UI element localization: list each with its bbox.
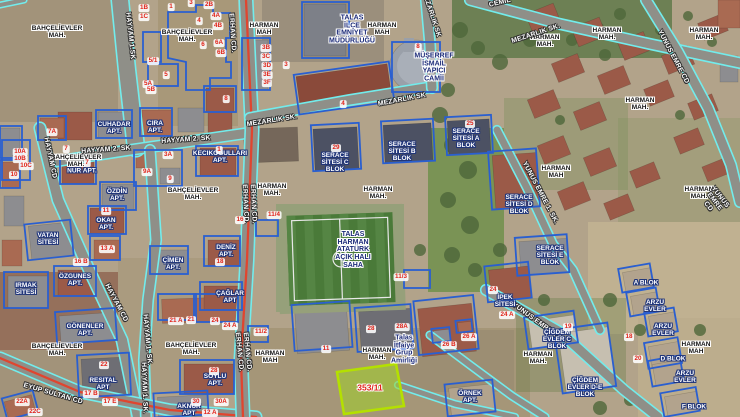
- building: [208, 240, 240, 266]
- building: [718, 0, 740, 28]
- tree: [523, 33, 537, 47]
- minaret: [404, 38, 414, 52]
- parcel-outline: [404, 270, 430, 288]
- tree: [452, 22, 468, 38]
- map-canvas: [0, 0, 740, 417]
- tree: [634, 324, 646, 336]
- building: [304, 4, 346, 56]
- building: [206, 88, 234, 112]
- tree: [593, 401, 607, 415]
- parcel-outline: [256, 220, 278, 236]
- selected-parcel[interactable]: [337, 364, 404, 414]
- tree: [471, 41, 485, 55]
- satellite-map-viewport[interactable]: BAHÇELİEVLER MAH.BAHÇELİEVLER MAH.HARMAN…: [0, 0, 740, 417]
- building: [0, 128, 20, 158]
- building: [2, 240, 22, 266]
- tree: [444, 247, 460, 263]
- tree: [441, 83, 455, 97]
- building: [4, 196, 24, 226]
- tree: [459, 161, 477, 179]
- building: [142, 110, 172, 136]
- building: [204, 286, 242, 310]
- tree: [683, 11, 693, 21]
- building: [178, 108, 204, 132]
- tree: [468, 263, 482, 277]
- building: [295, 306, 350, 354]
- tree: [599, 49, 611, 61]
- building: [160, 168, 180, 184]
- building: [2, 162, 20, 188]
- tree: [694, 324, 706, 336]
- tree: [440, 192, 456, 208]
- building: [359, 308, 414, 354]
- tree: [603, 293, 617, 307]
- tree: [614, 8, 626, 20]
- building: [383, 123, 433, 163]
- tree: [493, 243, 507, 257]
- tree: [492, 54, 508, 70]
- tree: [538, 294, 550, 306]
- building: [313, 127, 359, 171]
- tree: [461, 216, 479, 234]
- building: [94, 240, 120, 260]
- tree: [414, 244, 426, 256]
- ground-patch: [0, 0, 118, 122]
- tree: [555, 115, 565, 125]
- building: [90, 208, 124, 234]
- building: [644, 80, 675, 106]
- building: [597, 65, 630, 94]
- building: [447, 119, 491, 155]
- building: [200, 148, 236, 176]
- road-surface: [426, 0, 432, 88]
- building: [8, 276, 48, 308]
- tree: [675, 110, 685, 120]
- building: [184, 364, 234, 394]
